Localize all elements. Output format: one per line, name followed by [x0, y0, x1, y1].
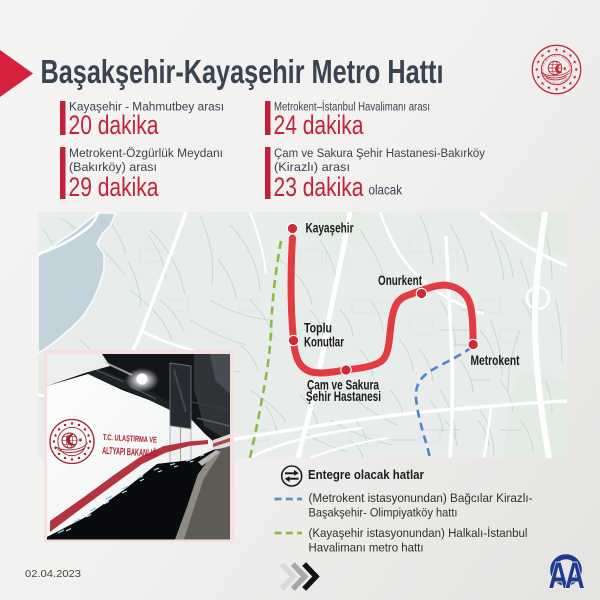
svg-text:Metrokent: Metrokent	[471, 353, 520, 368]
svg-text:Başakşehir- Olimpiyatköy hattı: Başakşehir- Olimpiyatköy hattı	[309, 506, 458, 520]
svg-text:Konutlar: Konutlar	[304, 335, 345, 350]
svg-text:Metrokent-Özgürlük Meydanı: Metrokent-Özgürlük Meydanı	[69, 146, 223, 160]
svg-text:20 dakika: 20 dakika	[69, 110, 160, 139]
svg-text:Çam ve Sakura Şehir Hastanesi-: Çam ve Sakura Şehir Hastanesi-Bakırköy	[274, 146, 486, 160]
svg-text:29 dakika: 29 dakika	[69, 172, 160, 201]
svg-text:24 dakika: 24 dakika	[274, 110, 365, 139]
svg-text:(Kayaşehir istasyonundan) Halk: (Kayaşehir istasyonundan) Halkalı-İstanb…	[309, 526, 528, 540]
svg-text:23 dakika: 23 dakika	[274, 172, 365, 201]
svg-text:Havalimanı metro hattı: Havalimanı metro hattı	[309, 541, 424, 555]
svg-text:olacak: olacak	[369, 183, 403, 198]
svg-text:Kayaşehir: Kayaşehir	[306, 221, 355, 236]
svg-text:Entegre olacak hatlar: Entegre olacak hatlar	[308, 467, 424, 482]
svg-text:02.04.2023: 02.04.2023	[25, 568, 81, 580]
svg-text:Toplu: Toplu	[304, 321, 332, 336]
svg-text:(Metrokent istasyonundan) Bağc: (Metrokent istasyonundan) Bağcılar Kiraz…	[309, 491, 533, 505]
svg-text:Şehir Hastanesi: Şehir Hastanesi	[306, 389, 381, 404]
svg-text:A: A	[565, 554, 585, 589]
svg-text:Onurkent: Onurkent	[378, 273, 422, 288]
svg-text:Başakşehir-Kayaşehir Metro Hat: Başakşehir-Kayaşehir Metro Hattı	[41, 54, 444, 91]
